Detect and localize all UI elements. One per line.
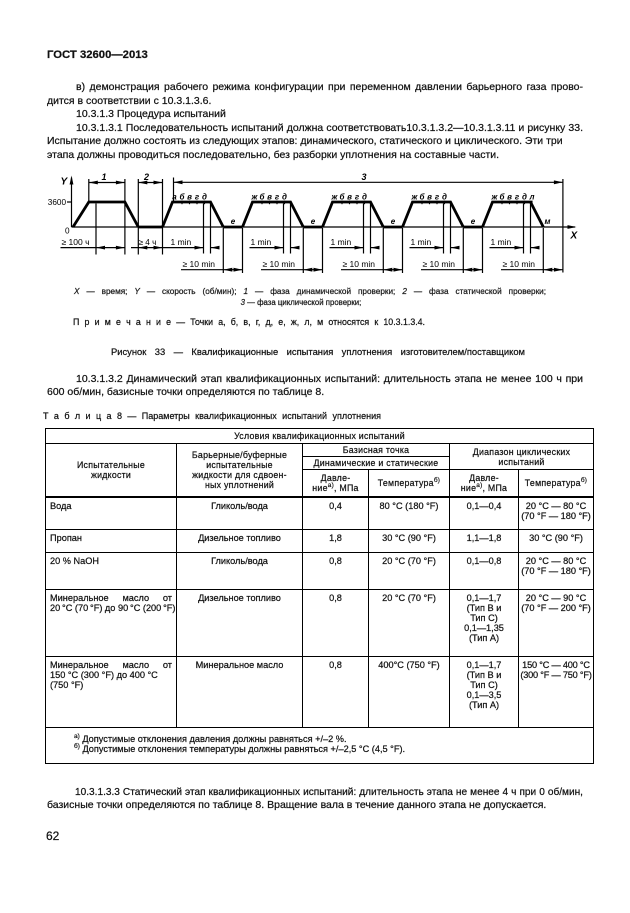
svg-text:б: б: [420, 193, 426, 202]
svg-text:1 min: 1 min: [251, 237, 272, 247]
svg-text:1 min: 1 min: [411, 237, 432, 247]
svg-text:≥ 100 ч: ≥ 100 ч: [62, 237, 90, 247]
svg-text:м: м: [545, 217, 551, 226]
svg-text:л: л: [529, 193, 535, 202]
svg-text:ж: ж: [411, 193, 419, 202]
svg-text:е: е: [471, 217, 476, 226]
svg-text:2: 2: [143, 172, 149, 182]
svg-text:б: б: [260, 193, 266, 202]
svg-text:≥ 10 min: ≥ 10 min: [423, 259, 456, 269]
svg-text:ж: ж: [331, 193, 339, 202]
svg-text:в: в: [187, 193, 192, 202]
svg-text:3600: 3600: [48, 198, 67, 207]
svg-text:в: в: [507, 193, 512, 202]
svg-text:б: б: [180, 193, 186, 202]
svg-text:1 min: 1 min: [171, 237, 192, 247]
svg-text:0: 0: [65, 227, 70, 236]
svg-text:г: г: [195, 193, 200, 202]
svg-text:б: б: [340, 193, 346, 202]
svg-text:в: в: [267, 193, 272, 202]
svg-text:д: д: [282, 193, 287, 202]
svg-text:д: д: [202, 193, 207, 202]
svg-text:1 min: 1 min: [331, 237, 352, 247]
svg-text:е: е: [311, 217, 316, 226]
svg-text:≥ 10 min: ≥ 10 min: [503, 259, 536, 269]
svg-text:г: г: [355, 193, 360, 202]
svg-text:≥ 10 min: ≥ 10 min: [343, 259, 376, 269]
svg-text:≥ 10 min: ≥ 10 min: [183, 259, 216, 269]
svg-text:д: д: [442, 193, 447, 202]
svg-text:г: г: [275, 193, 280, 202]
svg-text:б: б: [500, 193, 506, 202]
svg-text:г: г: [515, 193, 520, 202]
svg-text:в: в: [347, 193, 352, 202]
svg-text:е: е: [391, 217, 396, 226]
svg-text:1: 1: [101, 172, 106, 182]
svg-text:X: X: [570, 231, 579, 242]
svg-text:е: е: [231, 217, 236, 226]
svg-text:д: д: [522, 193, 527, 202]
svg-text:Y: Y: [61, 177, 69, 188]
svg-text:1 min: 1 min: [491, 237, 512, 247]
svg-text:г: г: [435, 193, 440, 202]
svg-text:ж: ж: [491, 193, 499, 202]
svg-text:д: д: [362, 193, 367, 202]
svg-text:3: 3: [361, 172, 366, 182]
svg-text:≥ 4 ч: ≥ 4 ч: [139, 238, 157, 247]
svg-text:≥ 10 min: ≥ 10 min: [263, 259, 296, 269]
svg-text:ж: ж: [251, 193, 259, 202]
svg-text:в: в: [427, 193, 432, 202]
